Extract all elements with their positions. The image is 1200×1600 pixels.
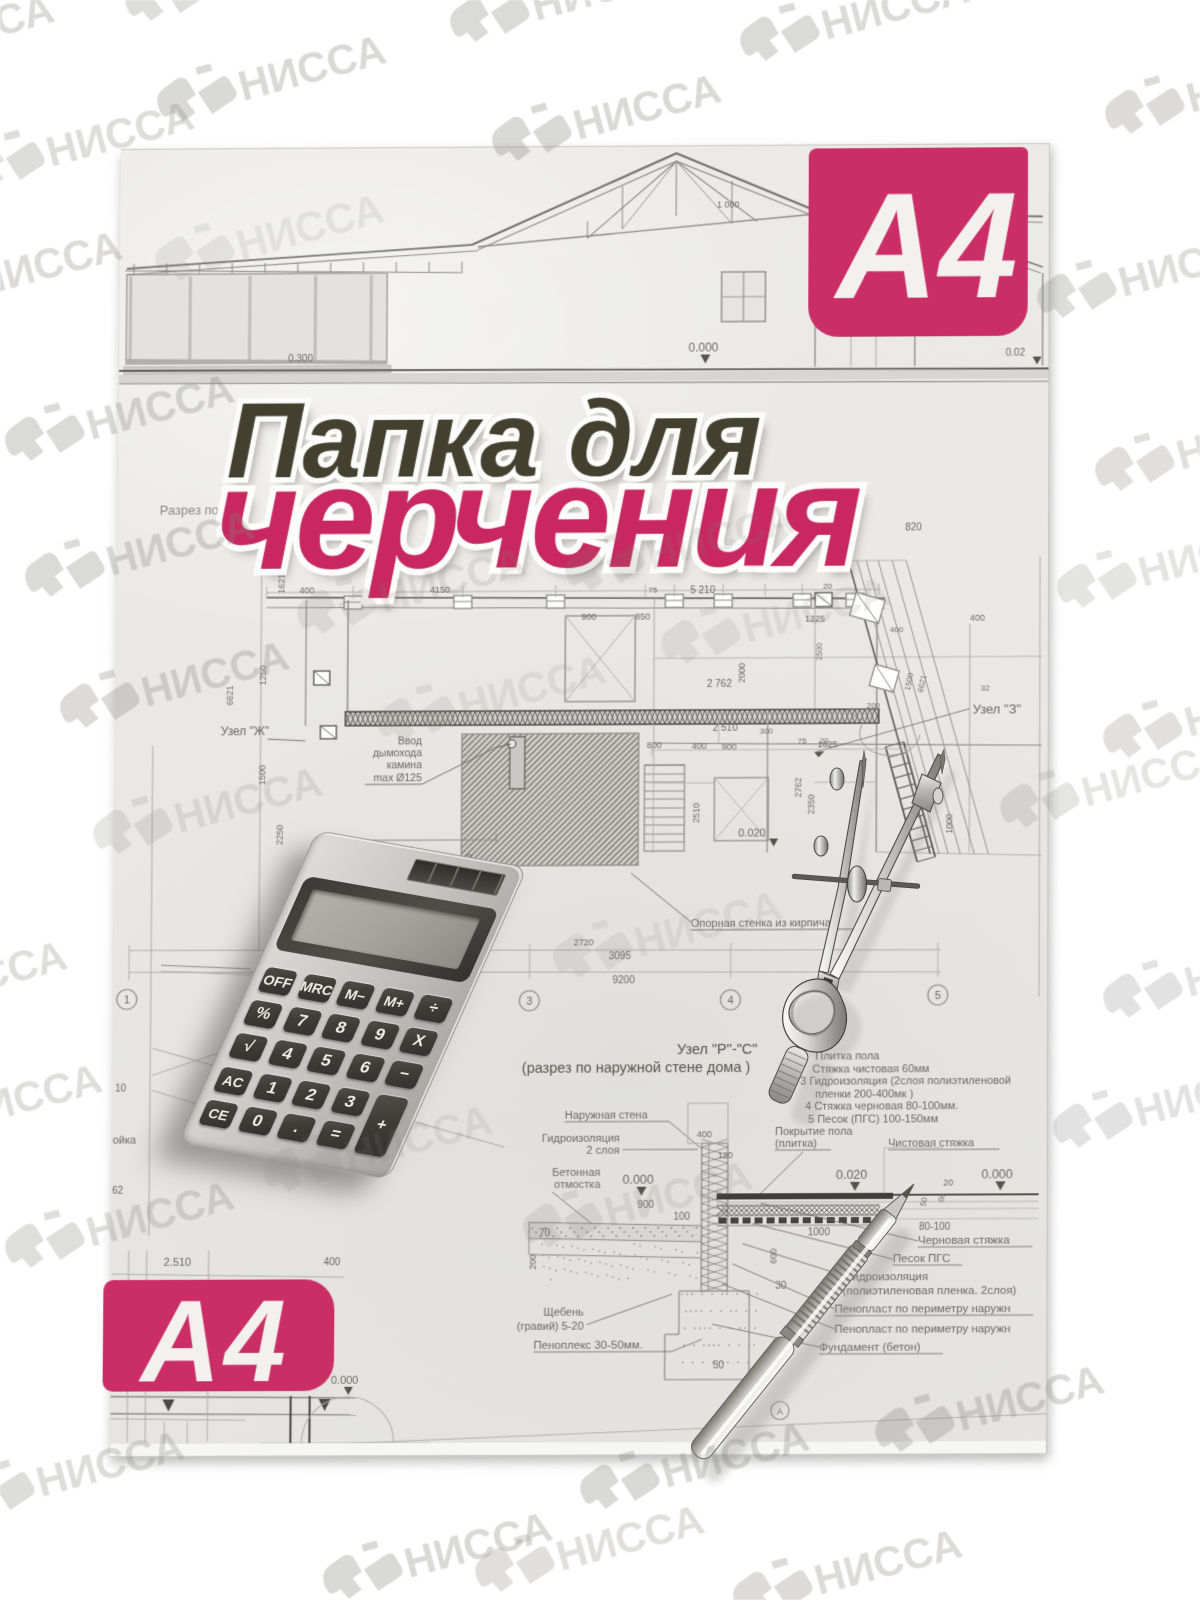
- svg-text:9200: 9200: [612, 975, 635, 986]
- svg-text:0.000: 0.000: [331, 1375, 359, 1387]
- svg-text:2 слоя: 2 слоя: [586, 1145, 619, 1157]
- svg-text:2.510: 2.510: [164, 1257, 192, 1269]
- svg-text:1500: 1500: [257, 765, 267, 785]
- svg-text:2 762: 2 762: [707, 679, 732, 690]
- svg-text:max Ø125: max Ø125: [374, 773, 423, 784]
- svg-text:Узел "Ж": Узел "Ж": [221, 724, 269, 738]
- svg-text:0.000: 0.000: [981, 1167, 1013, 1181]
- svg-text:10: 10: [115, 1083, 127, 1094]
- svg-text:200: 200: [528, 1254, 538, 1269]
- svg-text:2250: 2250: [275, 825, 285, 845]
- svg-text:1: 1: [124, 994, 130, 1006]
- svg-text:6621: 6621: [225, 685, 235, 705]
- svg-text:900: 900: [581, 612, 596, 622]
- svg-text:0.000: 0.000: [688, 340, 718, 354]
- svg-text:900: 900: [722, 742, 737, 752]
- svg-text:Узел "З": Узел "З": [973, 701, 1022, 716]
- svg-text:3095: 3095: [609, 951, 632, 962]
- svg-text:(гравий) 5-20: (гравий) 5-20: [517, 1321, 584, 1333]
- svg-text:камина: камина: [387, 760, 423, 771]
- svg-text:Щебень: Щебень: [543, 1306, 584, 1318]
- svg-text:(разрез по наружной стене дома: (разрез по наружной стене дома ): [522, 1060, 751, 1077]
- svg-text:Ввод: Ввод: [398, 736, 422, 747]
- svg-text:400: 400: [324, 1257, 341, 1268]
- svg-text:1250: 1250: [258, 665, 268, 685]
- svg-text:3: 3: [526, 996, 532, 1008]
- svg-text:1 000: 1 000: [717, 199, 739, 209]
- svg-text:2720: 2720: [574, 937, 594, 947]
- svg-text:62: 62: [112, 1186, 123, 1197]
- svg-text:2510: 2510: [691, 803, 701, 823]
- svg-text:ойка: ойка: [113, 1134, 137, 1146]
- svg-text:Гидроизоляция: Гидроизоляция: [542, 1133, 620, 1145]
- svg-text:Наружная стена: Наружная стена: [565, 1109, 649, 1121]
- svg-text:дымохода: дымохода: [373, 748, 422, 759]
- svg-text:2500: 2500: [815, 642, 824, 660]
- svg-text:6621: 6621: [916, 674, 929, 694]
- svg-text:2000: 2000: [737, 663, 747, 683]
- svg-text:Бетонная: Бетонная: [552, 1167, 600, 1179]
- svg-text:850: 850: [635, 611, 650, 621]
- svg-text:400: 400: [890, 625, 904, 634]
- svg-text:0.300: 0.300: [288, 354, 313, 365]
- svg-text:70: 70: [539, 1228, 551, 1239]
- svg-text:400: 400: [970, 613, 985, 623]
- svg-text:800: 800: [647, 740, 662, 750]
- svg-text:1225: 1225: [805, 614, 825, 624]
- svg-text:отмостка: отмостка: [554, 1179, 601, 1191]
- svg-text:32: 32: [981, 684, 990, 693]
- svg-text:2 510: 2 510: [713, 723, 739, 734]
- svg-text:0.02: 0.02: [1006, 348, 1025, 359]
- svg-text:4: 4: [727, 995, 733, 1007]
